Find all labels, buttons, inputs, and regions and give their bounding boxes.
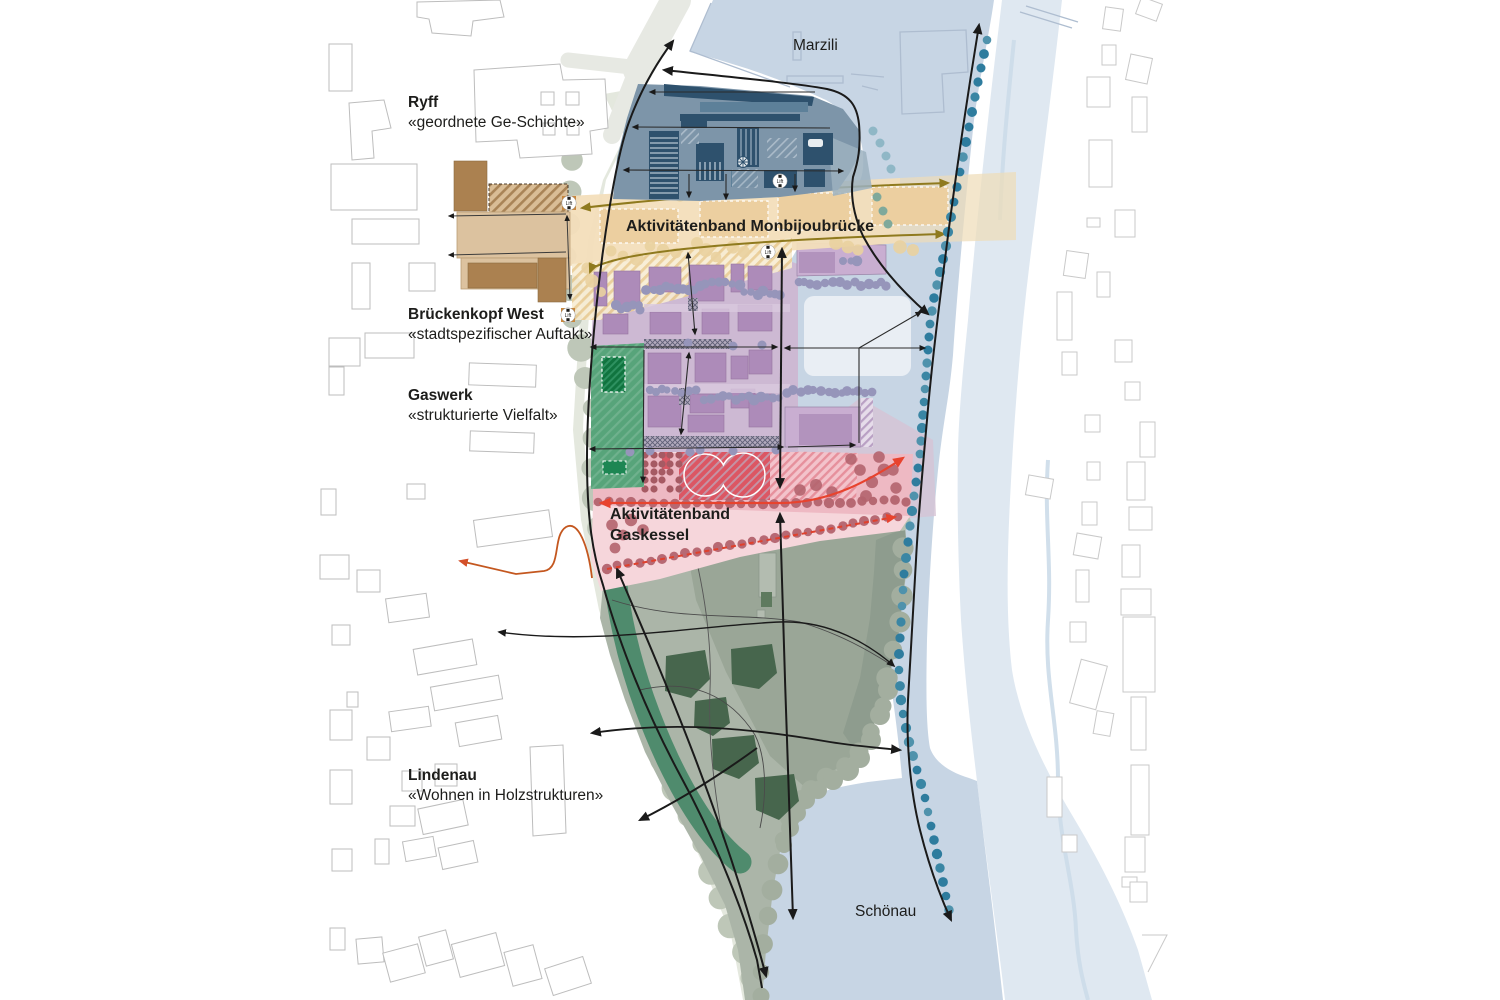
svg-text:Marzili: Marzili bbox=[793, 37, 838, 54]
svg-text:Lift: Lift bbox=[765, 250, 772, 256]
svg-text:«stadtspezifischer Auftakt»: «stadtspezifischer Auftakt» bbox=[408, 326, 592, 343]
svg-text:Lift: Lift bbox=[777, 179, 784, 185]
svg-text:Lindenau: Lindenau bbox=[408, 767, 477, 784]
svg-text:«Wohnen in Holzstrukturen»: «Wohnen in Holzstrukturen» bbox=[408, 787, 603, 804]
svg-text:Lift: Lift bbox=[565, 313, 572, 319]
svg-text:Lift: Lift bbox=[566, 201, 573, 207]
svg-text:Aktivitätenband Monbijoubrücke: Aktivitätenband Monbijoubrücke bbox=[626, 218, 874, 235]
svg-text:«geordnete Ge-Schichte»: «geordnete Ge-Schichte» bbox=[408, 114, 585, 131]
svg-text:Ryff: Ryff bbox=[408, 94, 439, 111]
svg-text:«strukturierte Vielfalt»: «strukturierte Vielfalt» bbox=[408, 407, 558, 424]
svg-text:Brückenkopf West: Brückenkopf West bbox=[408, 306, 544, 323]
svg-text:Gaskessel: Gaskessel bbox=[610, 527, 689, 544]
svg-text:Aktivitätenband: Aktivitätenband bbox=[610, 506, 730, 523]
svg-text:Schönau: Schönau bbox=[855, 903, 916, 920]
svg-text:Gaswerk: Gaswerk bbox=[408, 387, 473, 404]
